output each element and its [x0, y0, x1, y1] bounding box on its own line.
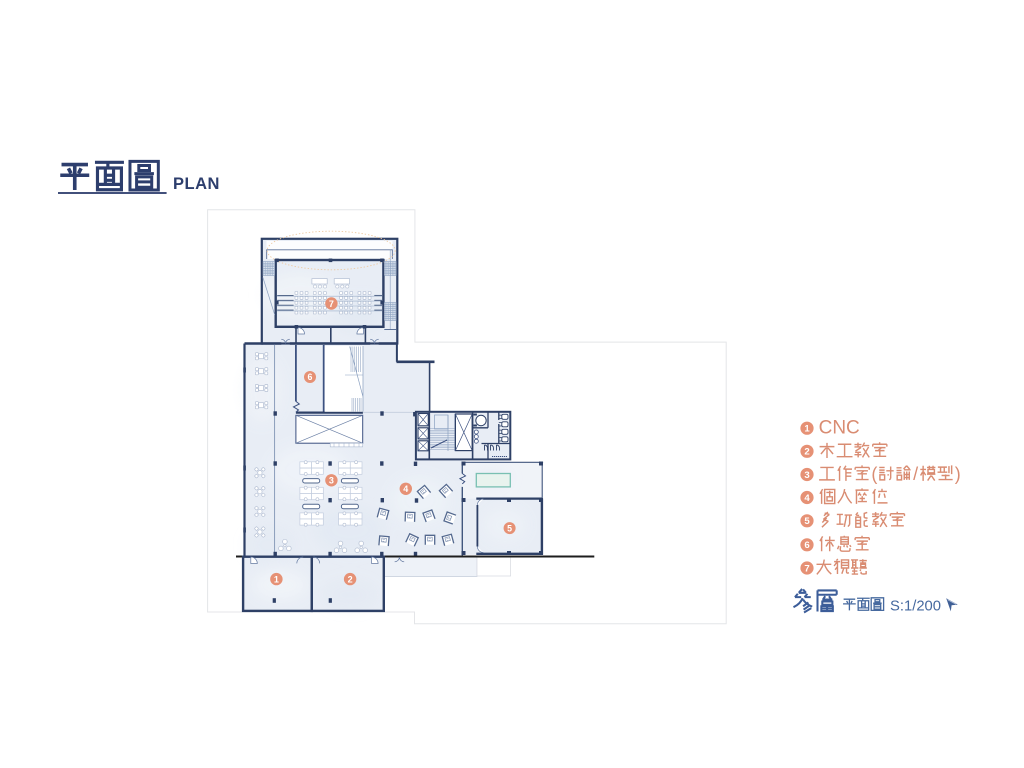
svg-text:6: 6	[308, 372, 313, 382]
svg-text:1: 1	[274, 574, 279, 584]
svg-text:S:1/200: S:1/200	[890, 599, 941, 615]
svg-text:/: /	[913, 464, 918, 484]
svg-text:4: 4	[403, 484, 408, 494]
svg-text:1: 1	[804, 424, 810, 435]
svg-text:5: 5	[507, 523, 512, 533]
svg-text:3: 3	[804, 470, 809, 481]
svg-text:CNC: CNC	[819, 418, 860, 439]
svg-text:3: 3	[329, 476, 334, 486]
svg-text:7: 7	[804, 563, 809, 574]
svg-text:7: 7	[329, 299, 334, 309]
svg-text:6: 6	[804, 540, 809, 551]
svg-text:2: 2	[348, 574, 353, 584]
svg-text:5: 5	[804, 516, 810, 527]
svg-text:4: 4	[804, 493, 810, 504]
svg-text:(: (	[871, 464, 877, 484]
svg-text:PLAN: PLAN	[173, 175, 220, 193]
svg-text:): )	[955, 464, 961, 484]
svg-text:2: 2	[804, 447, 809, 458]
